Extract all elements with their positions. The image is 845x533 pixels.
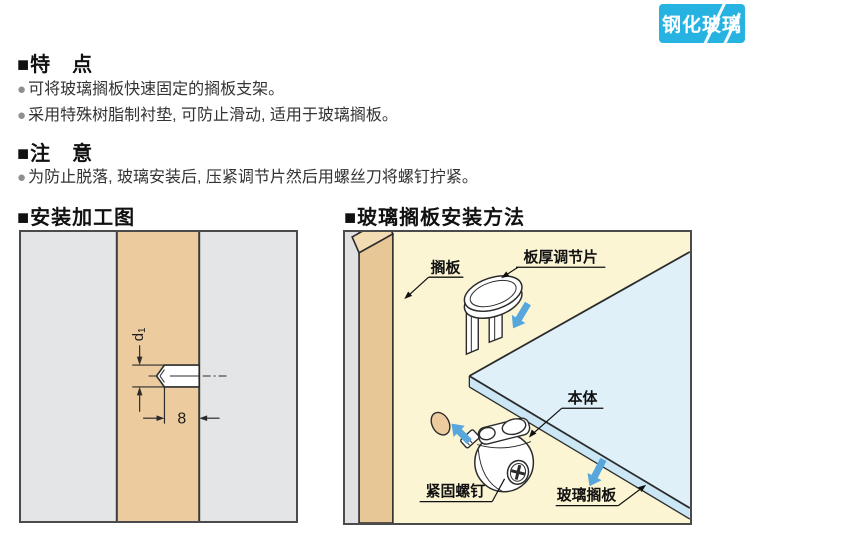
feature-item: ● 采用特殊树脂制衬垫, 可防止滑动, 适用于玻璃搁板。 (17, 106, 398, 126)
label-glass-shelf: 玻璃搁板 (556, 485, 646, 506)
dim-depth-label: 8 (177, 411, 186, 428)
install-diagram-canvas: d1 8 (21, 232, 296, 521)
bullet-icon: ● (17, 168, 26, 188)
method-diagram-box: 搁板 板厚调节片 本体 紧固螺钉 玻璃搁板 (343, 230, 692, 525)
method-diagram-heading: ■玻璃搁板安装方法 (344, 201, 525, 230)
pilot-hole-oval (427, 409, 453, 438)
svg-text:板厚调节片: 板厚调节片 (524, 248, 598, 266)
svg-text:玻璃搁板: 玻璃搁板 (557, 486, 617, 504)
label-adjuster: 板厚调节片 (501, 248, 605, 278)
method-diagram-canvas: 搁板 板厚调节片 本体 紧固螺钉 玻璃搁板 (345, 232, 690, 523)
feature-item: ● 可将玻璃搁板快速固定的搁板支架。 (17, 80, 284, 100)
feature-text: 可将玻璃搁板快速固定的搁板支架。 (28, 80, 284, 100)
side-panel-front-face (359, 234, 393, 523)
note-heading: ■注 意 (17, 137, 93, 166)
install-diagram-heading: ■安装加工图 (17, 201, 135, 230)
bracket-body (460, 417, 533, 492)
catalog-page: { "badge": { "label": "钢化玻璃" }, "bullet_… (0, 0, 845, 533)
badge-label: 钢化玻璃 (662, 10, 742, 37)
tempered-glass-badge: 钢化玻璃 (659, 4, 745, 43)
leader-arrowhead (529, 430, 536, 438)
wall-strip (345, 232, 359, 523)
note-text: 为防止脱落, 玻璃安装后, 压紧调节片然后用螺丝刀将螺钉拧紧。 (28, 168, 478, 188)
install-diagram-box: d1 8 (19, 230, 298, 523)
feature-text: 采用特殊树脂制衬垫, 可防止滑动, 适用于玻璃搁板。 (28, 106, 398, 126)
svg-text:搁板: 搁板 (431, 259, 461, 277)
bullet-icon: ● (17, 80, 26, 100)
note-item: ● 为防止脱落, 玻璃安装后, 压紧调节片然后用螺丝刀将螺钉拧紧。 (17, 168, 478, 188)
dim-arrowhead (199, 415, 207, 421)
svg-text:本体: 本体 (568, 389, 598, 407)
features-heading: ■特 点 (17, 48, 93, 77)
svg-text:紧固螺钉: 紧固螺钉 (426, 482, 486, 500)
adjuster-piece (460, 269, 526, 354)
bullet-icon: ● (17, 106, 26, 126)
label-shelf-panel: 搁板 (404, 259, 463, 299)
